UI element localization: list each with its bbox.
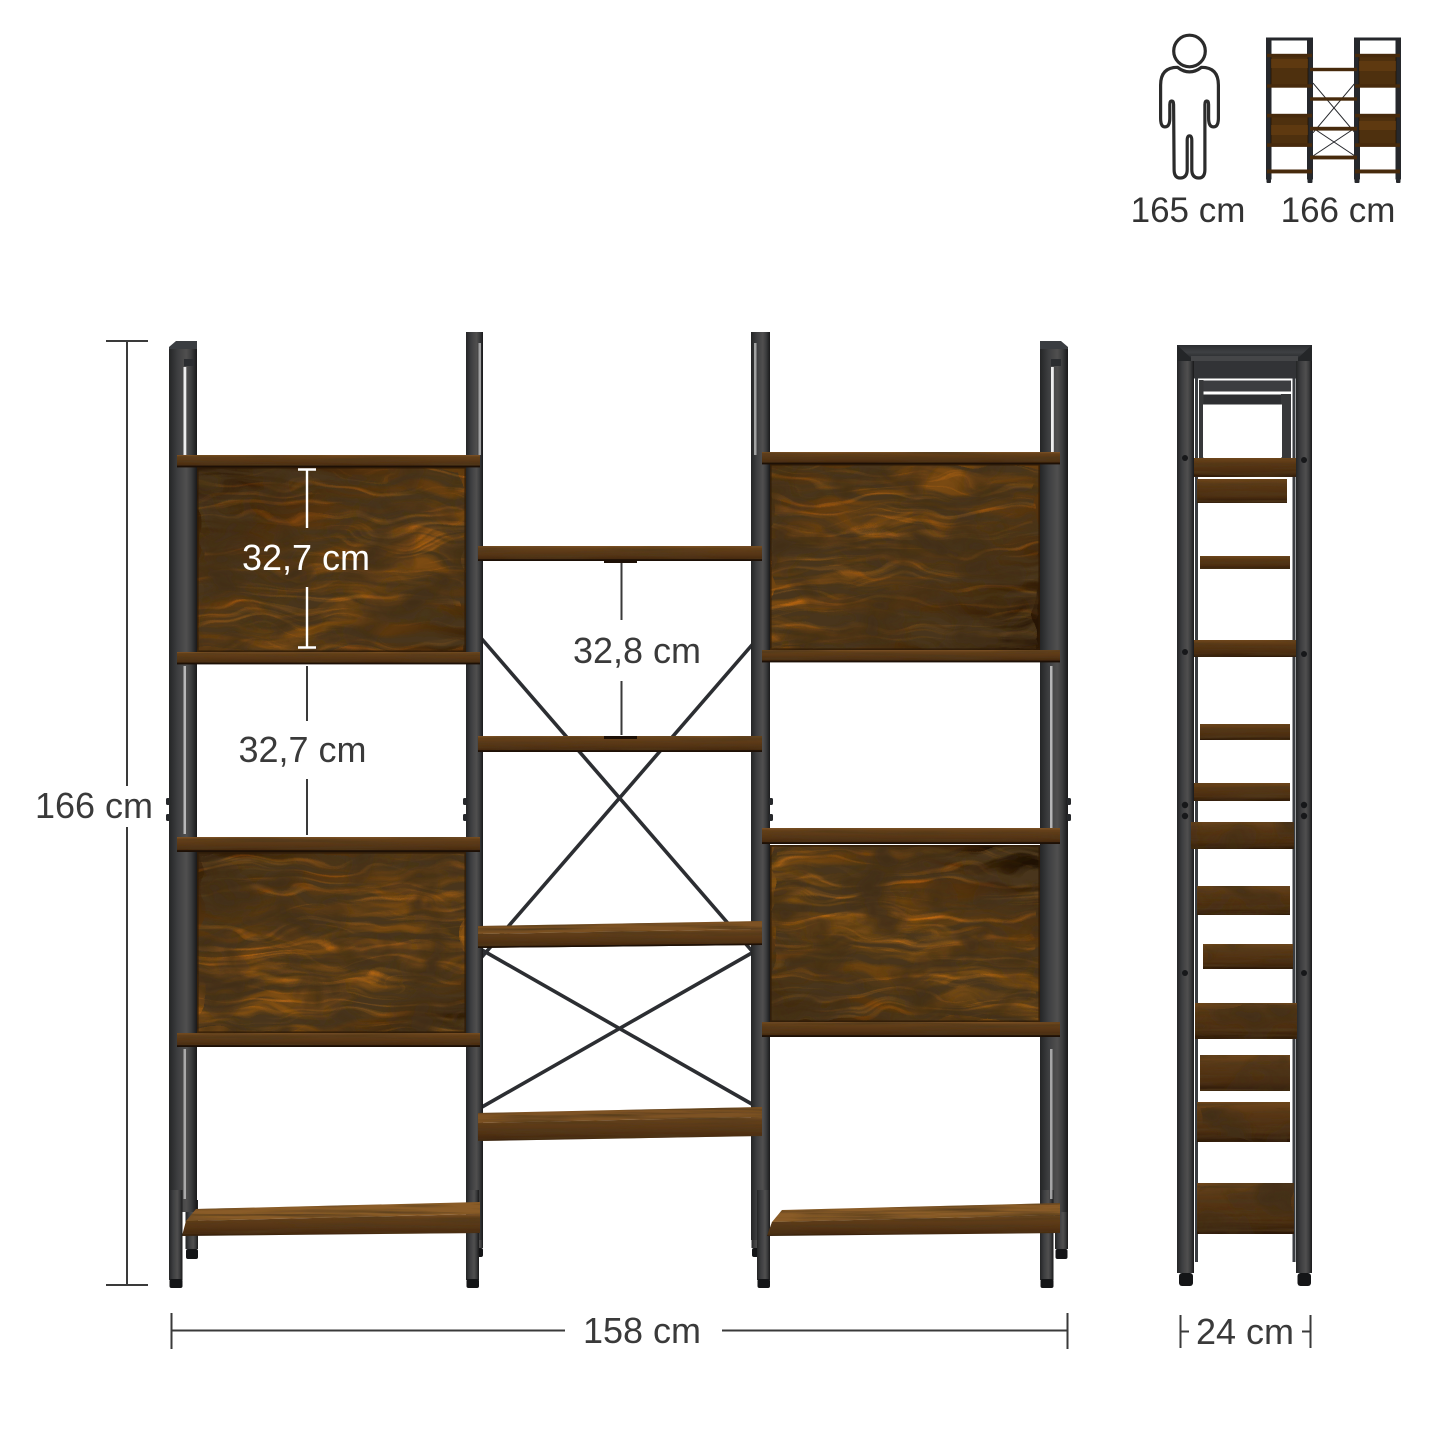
svg-text:166 cm: 166 cm xyxy=(35,785,153,826)
svg-text:158 cm: 158 cm xyxy=(583,1310,701,1351)
svg-text:32,8 cm: 32,8 cm xyxy=(573,630,701,671)
svg-text:32,7 cm: 32,7 cm xyxy=(238,729,366,770)
svg-text:166 cm: 166 cm xyxy=(1281,191,1396,230)
svg-text:32,7 cm: 32,7 cm xyxy=(242,537,370,578)
svg-text:24 cm: 24 cm xyxy=(1196,1311,1294,1352)
svg-text:165 cm: 165 cm xyxy=(1131,191,1246,230)
